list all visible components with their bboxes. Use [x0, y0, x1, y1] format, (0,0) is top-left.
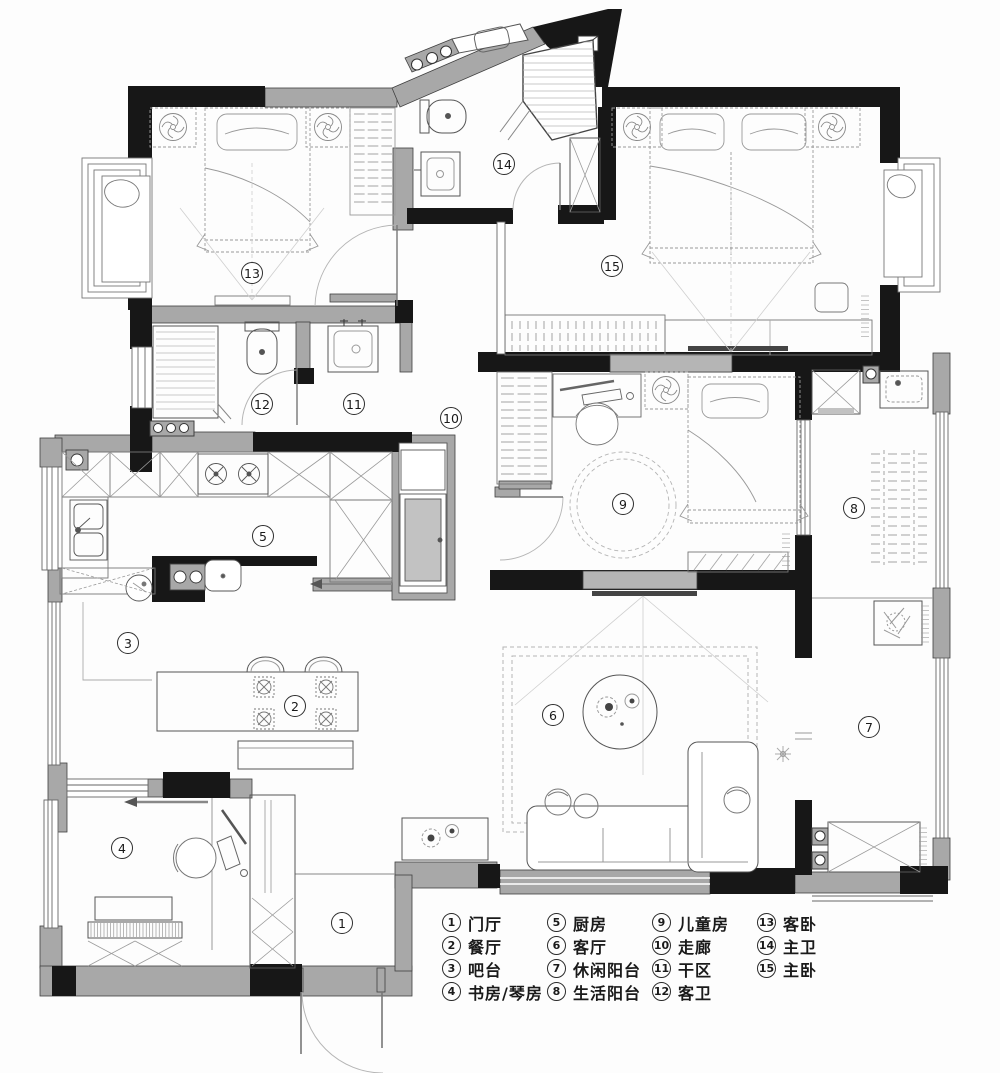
shower [523, 40, 597, 140]
sink-icon [70, 500, 107, 560]
room-marker: 1 [331, 912, 353, 934]
flower-icon [775, 746, 791, 762]
room-marker: 13 [241, 262, 263, 284]
room-marker: 15 [601, 255, 623, 277]
plant-icon [884, 608, 910, 638]
room-6-living [295, 591, 768, 884]
room-marker: 12 [251, 393, 273, 415]
pillow [660, 114, 724, 150]
coffee-table [583, 675, 657, 749]
chair [176, 838, 216, 878]
console-table [215, 296, 290, 305]
tv-icon [688, 346, 788, 351]
bar-stool [126, 575, 152, 601]
shelf [688, 552, 788, 572]
room-marker: 6 [542, 704, 564, 726]
chaise [884, 170, 922, 277]
room-marker: 14 [493, 153, 515, 175]
keyboard-icon [582, 389, 622, 405]
room-marker: 3 [117, 632, 139, 654]
bay-window-guest-bedroom [82, 158, 152, 298]
bed [205, 108, 310, 252]
bed [688, 377, 800, 523]
keyboard-icon [217, 836, 240, 870]
wardrobe [497, 372, 552, 484]
floor-plan-page: 123456789101112131415 1门厅2餐厅3吧台4书房/琴房5厨房… [0, 0, 1000, 1073]
room-marker: 8 [843, 497, 865, 519]
room-marker: 7 [858, 716, 880, 738]
room-2-dining [157, 657, 488, 860]
faucet-icon [866, 369, 876, 379]
side-table [402, 818, 488, 860]
pillow [742, 114, 806, 150]
monitor-icon [222, 810, 246, 844]
walls-gray [40, 27, 950, 996]
shower [153, 326, 218, 418]
door-arc [500, 497, 563, 560]
toilet-icon [245, 322, 279, 374]
vanity [414, 152, 460, 196]
pillow [217, 114, 297, 150]
toilet-icon [420, 100, 466, 133]
hall-partition [497, 222, 505, 354]
counter [62, 452, 330, 497]
chair [247, 657, 284, 672]
entry-door [301, 992, 383, 1073]
room-marker: 5 [252, 525, 274, 547]
faucet-icon [441, 46, 452, 57]
wardrobe [505, 315, 665, 355]
chaise [102, 176, 150, 282]
faucet-icon [815, 831, 825, 841]
chair [305, 657, 342, 672]
stove-icon [198, 454, 268, 494]
piano-keyboard [88, 922, 182, 938]
room-5-kitchen [62, 443, 447, 593]
cabinet-column [250, 795, 295, 968]
bay-window-master-bedroom [884, 158, 940, 292]
side-table [815, 283, 848, 312]
faucet-icon [412, 59, 423, 70]
room-marker: 10 [440, 407, 462, 429]
piano-lid [95, 897, 172, 920]
counter [62, 497, 108, 578]
door-arc [302, 992, 383, 1073]
sofa [527, 742, 758, 872]
room-marker: 11 [343, 393, 365, 415]
tall-cabinet [330, 452, 392, 582]
door-slide-arrow [124, 797, 137, 807]
room-12-guest-bath [150, 322, 297, 436]
fridge-icon [399, 443, 447, 593]
room-8-laundry-balcony [812, 366, 933, 598]
sideboard [238, 741, 353, 769]
faucet-icon [815, 855, 825, 865]
mouse-icon [627, 393, 634, 400]
sliding-door-sills [583, 354, 732, 589]
room-marker: 9 [612, 493, 634, 515]
monitor-icon [560, 381, 614, 390]
room-15-master-bedroom [505, 108, 872, 355]
mouse-icon [241, 870, 248, 877]
room-11-dry-area [328, 319, 378, 372]
room-marker: 2 [284, 695, 306, 717]
door-arc [513, 163, 560, 210]
wardrobe [350, 108, 395, 215]
sight-lines [652, 185, 810, 352]
room-marker: 4 [111, 837, 133, 859]
tv-icon [592, 591, 697, 596]
faucet-icon [427, 53, 438, 64]
plant-box [874, 601, 922, 645]
